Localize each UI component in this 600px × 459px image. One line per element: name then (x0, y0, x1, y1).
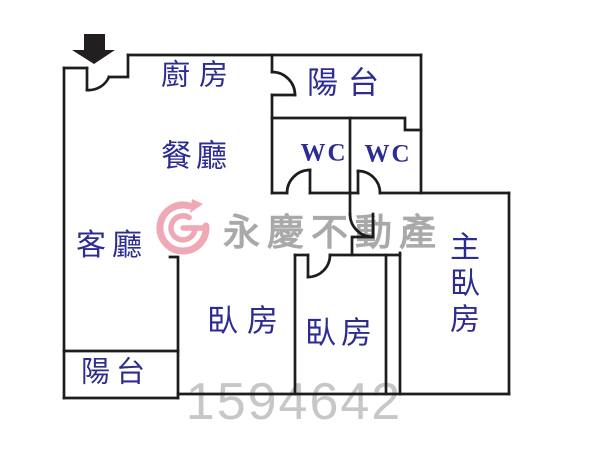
balcony-top-bottom-wall (272, 118, 421, 130)
living-right-wall (170, 257, 178, 398)
entry-step (109, 55, 128, 77)
walls (64, 55, 509, 398)
entrance-arrow-icon (72, 34, 115, 64)
room-label-bedroom-left: 臥房 (207, 307, 287, 338)
balcony-door-arc (272, 72, 295, 95)
corridor-door-arc (350, 214, 373, 237)
floorplan-canvas: 1594642 永慶不動產 (0, 0, 600, 459)
room-label-balcony-top: 陽台 (307, 69, 389, 100)
wc-left-door-arc (287, 170, 310, 193)
room-label-wc-left: WC (300, 141, 347, 166)
corridor-jog (352, 237, 373, 255)
wc-right-door-arc (358, 171, 380, 193)
brand-logo-icon (160, 199, 206, 251)
room-label-balcony-bottom: 陽台 (81, 358, 151, 387)
entry-door-arc (87, 77, 109, 90)
room-label-master-bedroom: 主臥房 (446, 231, 476, 339)
room-label-kitchen: 廚房 (161, 61, 237, 90)
room-label-living: 客廳 (76, 231, 148, 261)
room-label-bedroom-middle: 臥房 (305, 319, 377, 350)
room-label-wc-right: WC (364, 142, 411, 167)
room-label-dining: 餐廳 (161, 142, 231, 173)
bedroom-middle-door-arc (308, 255, 330, 277)
